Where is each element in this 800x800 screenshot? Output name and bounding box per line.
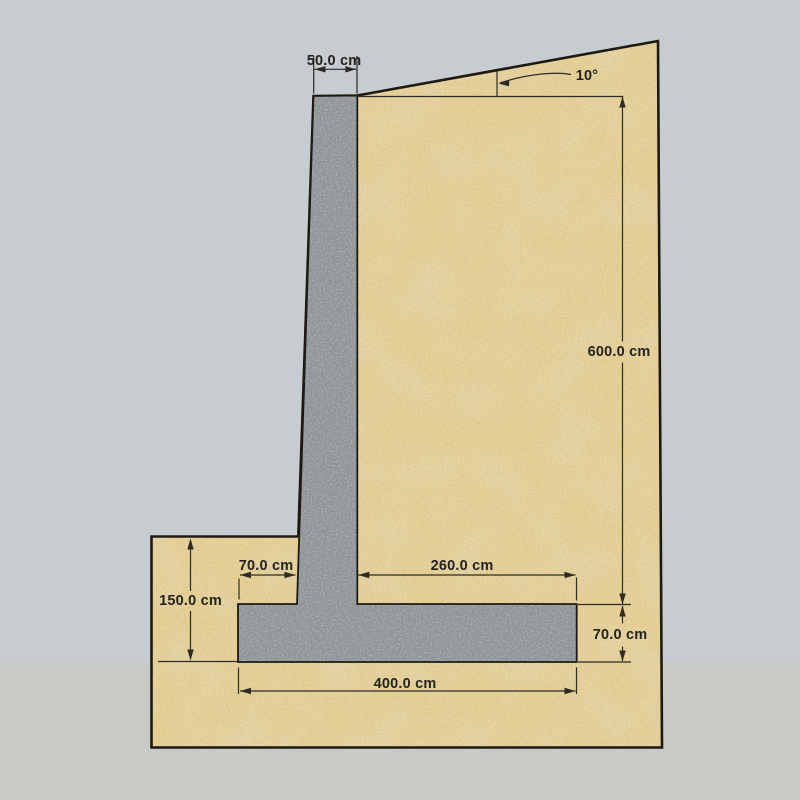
dimension-label-embedment-depth: 150.0 cm [159, 593, 222, 609]
dimension-label-footing-width: 400.0 cm [374, 676, 437, 692]
drawing-viewport[interactable]: 50.0 cm 10° 600.0 cm 260.0 cm 70.0 cm 70… [0, 0, 800, 800]
dimension-label-wall-height: 600.0 cm [588, 344, 651, 360]
dimension-label-toe-length: 70.0 cm [239, 558, 294, 574]
dimension-label-heel-length: 260.0 cm [431, 558, 494, 574]
dimension-label-footing-thickness: 70.0 cm [593, 627, 648, 643]
dimension-label-slope-angle: 10° [576, 68, 599, 84]
dimension-label-wall-top-width: 50.0 cm [307, 53, 362, 69]
